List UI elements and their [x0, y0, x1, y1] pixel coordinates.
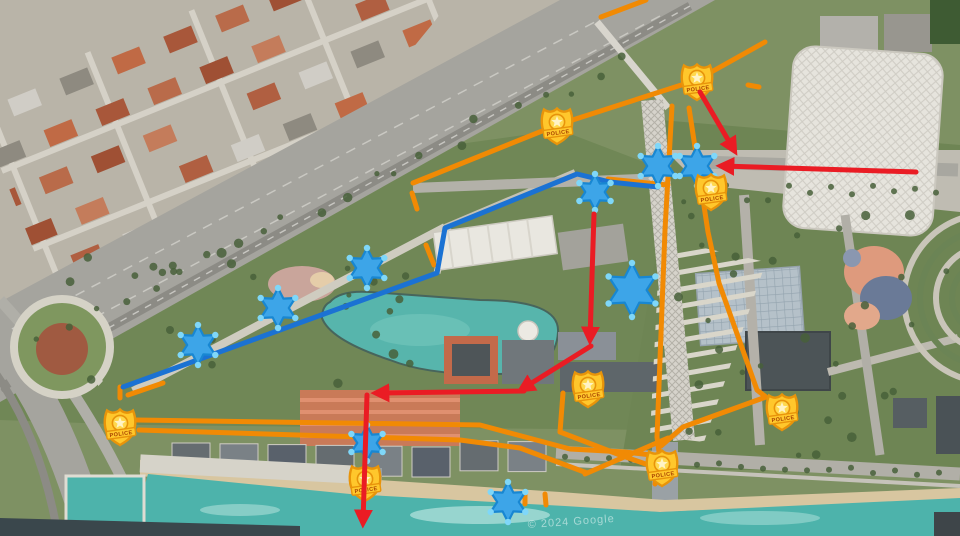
vertex-handle-dot[interactable] [505, 519, 511, 525]
vertex-handle-dot[interactable] [629, 260, 635, 266]
vertex-handle-dot[interactable] [212, 332, 218, 338]
service-building [884, 14, 932, 52]
map-view: © 2024 Google POLICEPOLICEPOLICEPOLICEPO… [0, 0, 960, 536]
vertex-handle-dot[interactable] [677, 173, 683, 179]
dark-building [936, 396, 960, 454]
vertex-handle-dot[interactable] [677, 153, 683, 159]
vertex-handle-dot[interactable] [348, 431, 354, 437]
vertex-handle-dot[interactable] [629, 314, 635, 320]
vertex-handle-dot[interactable] [292, 315, 298, 321]
vertex-handle-dot[interactable] [258, 295, 264, 301]
vertex-handle-dot[interactable] [178, 332, 184, 338]
vertex-handle-dot[interactable] [488, 489, 494, 495]
vertex-handle-dot[interactable] [258, 315, 264, 321]
vertex-handle-dot[interactable] [292, 295, 298, 301]
red-direction-arrow [377, 391, 524, 393]
vertex-handle-dot[interactable] [379, 449, 385, 455]
satellite-imagery: © 2024 Google [0, 0, 960, 536]
vertex-handle-dot[interactable] [605, 300, 611, 306]
vertex-handle-dot[interactable] [638, 173, 644, 179]
vertex-handle-dot[interactable] [652, 300, 658, 306]
vertex-handle-dot[interactable] [655, 183, 661, 189]
surf [700, 511, 820, 525]
green-roof [930, 0, 960, 44]
vertex-handle-dot[interactable] [488, 509, 494, 515]
dark-building [934, 512, 960, 536]
surf [200, 504, 280, 516]
vertex-handle-dot[interactable] [275, 325, 281, 331]
dark-building [893, 398, 927, 428]
vertex-handle-dot[interactable] [522, 489, 528, 495]
clay-court [36, 323, 88, 375]
vertex-handle-dot[interactable] [347, 275, 353, 281]
vertex-handle-dot[interactable] [195, 322, 201, 328]
vertex-handle-dot[interactable] [364, 245, 370, 251]
vertex-handle-dot[interactable] [576, 180, 582, 186]
vertex-handle-dot[interactable] [655, 143, 661, 149]
vertex-handle-dot[interactable] [711, 153, 717, 159]
courtyard-roof [452, 344, 490, 376]
vertex-handle-dot[interactable] [638, 153, 644, 159]
vertex-handle-dot[interactable] [381, 275, 387, 281]
vertex-handle-dot[interactable] [592, 171, 598, 177]
center-building [502, 340, 554, 384]
vertex-handle-dot[interactable] [379, 431, 385, 437]
vertex-handle-dot[interactable] [212, 352, 218, 358]
vertex-handle-dot[interactable] [694, 143, 700, 149]
vertex-handle-dot[interactable] [178, 352, 184, 358]
vertex-handle-dot[interactable] [381, 255, 387, 261]
vertex-handle-dot[interactable] [607, 180, 613, 186]
patrol-route-orange-dash [545, 494, 546, 505]
vertex-handle-dot[interactable] [275, 285, 281, 291]
map-canvas[interactable]: © 2024 Google POLICEPOLICEPOLICEPOLICEPO… [0, 0, 960, 536]
vertex-handle-dot[interactable] [576, 198, 582, 204]
service-building [820, 16, 878, 50]
vertex-handle-dot[interactable] [605, 273, 611, 279]
patrol-route-orange-dash [748, 85, 759, 87]
vertex-handle-dot[interactable] [522, 509, 528, 515]
vertex-handle-dot[interactable] [195, 362, 201, 368]
vertex-handle-dot[interactable] [364, 285, 370, 291]
vertex-handle-dot[interactable] [652, 273, 658, 279]
exhibition-dome [782, 45, 944, 237]
vertex-handle-dot[interactable] [505, 479, 511, 485]
fountain [518, 321, 538, 341]
vertex-handle-dot[interactable] [347, 255, 353, 261]
vertex-handle-dot[interactable] [607, 198, 613, 204]
vertex-handle-dot[interactable] [348, 449, 354, 455]
